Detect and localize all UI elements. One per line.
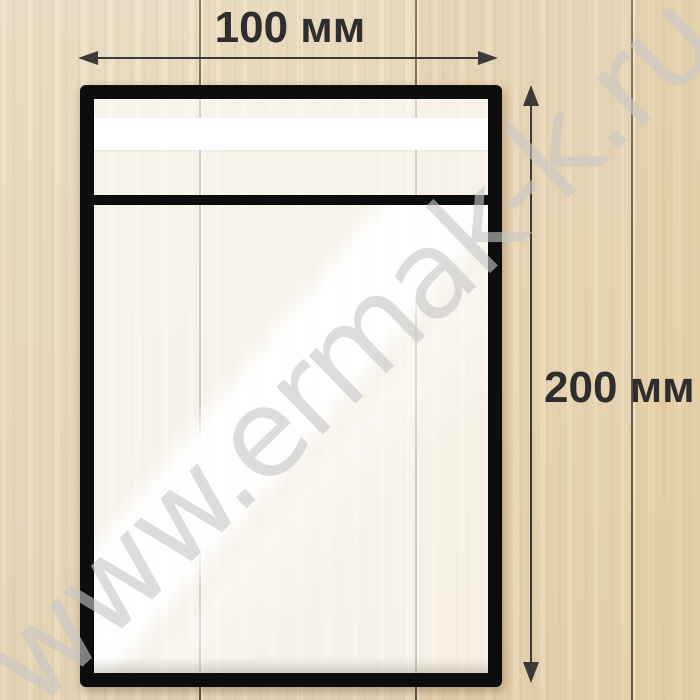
plank-seam: [631, 0, 633, 700]
adhesive-tape-strip: [94, 118, 488, 150]
width-dimension-label: 100 мм: [120, 6, 460, 50]
arrowhead-up-icon: [523, 85, 539, 106]
flap-fold-line: [94, 195, 488, 205]
bag-body: [94, 205, 488, 673]
width-dimension-line: [95, 57, 481, 59]
arrowhead-right-icon: [478, 51, 498, 65]
transparent-bag: [80, 85, 502, 687]
height-dimension-label: 200 мм: [544, 366, 695, 410]
height-dimension-line: [530, 102, 532, 665]
bag-bottom-shadow: [94, 658, 488, 673]
arrowhead-left-icon: [78, 51, 98, 65]
bag-inner: [94, 99, 488, 673]
product-photo: 100 мм 200 мм www.ermak-k.ru: [0, 0, 700, 700]
arrowhead-down-icon: [523, 662, 539, 683]
glare-soft-highlight: [94, 205, 488, 673]
